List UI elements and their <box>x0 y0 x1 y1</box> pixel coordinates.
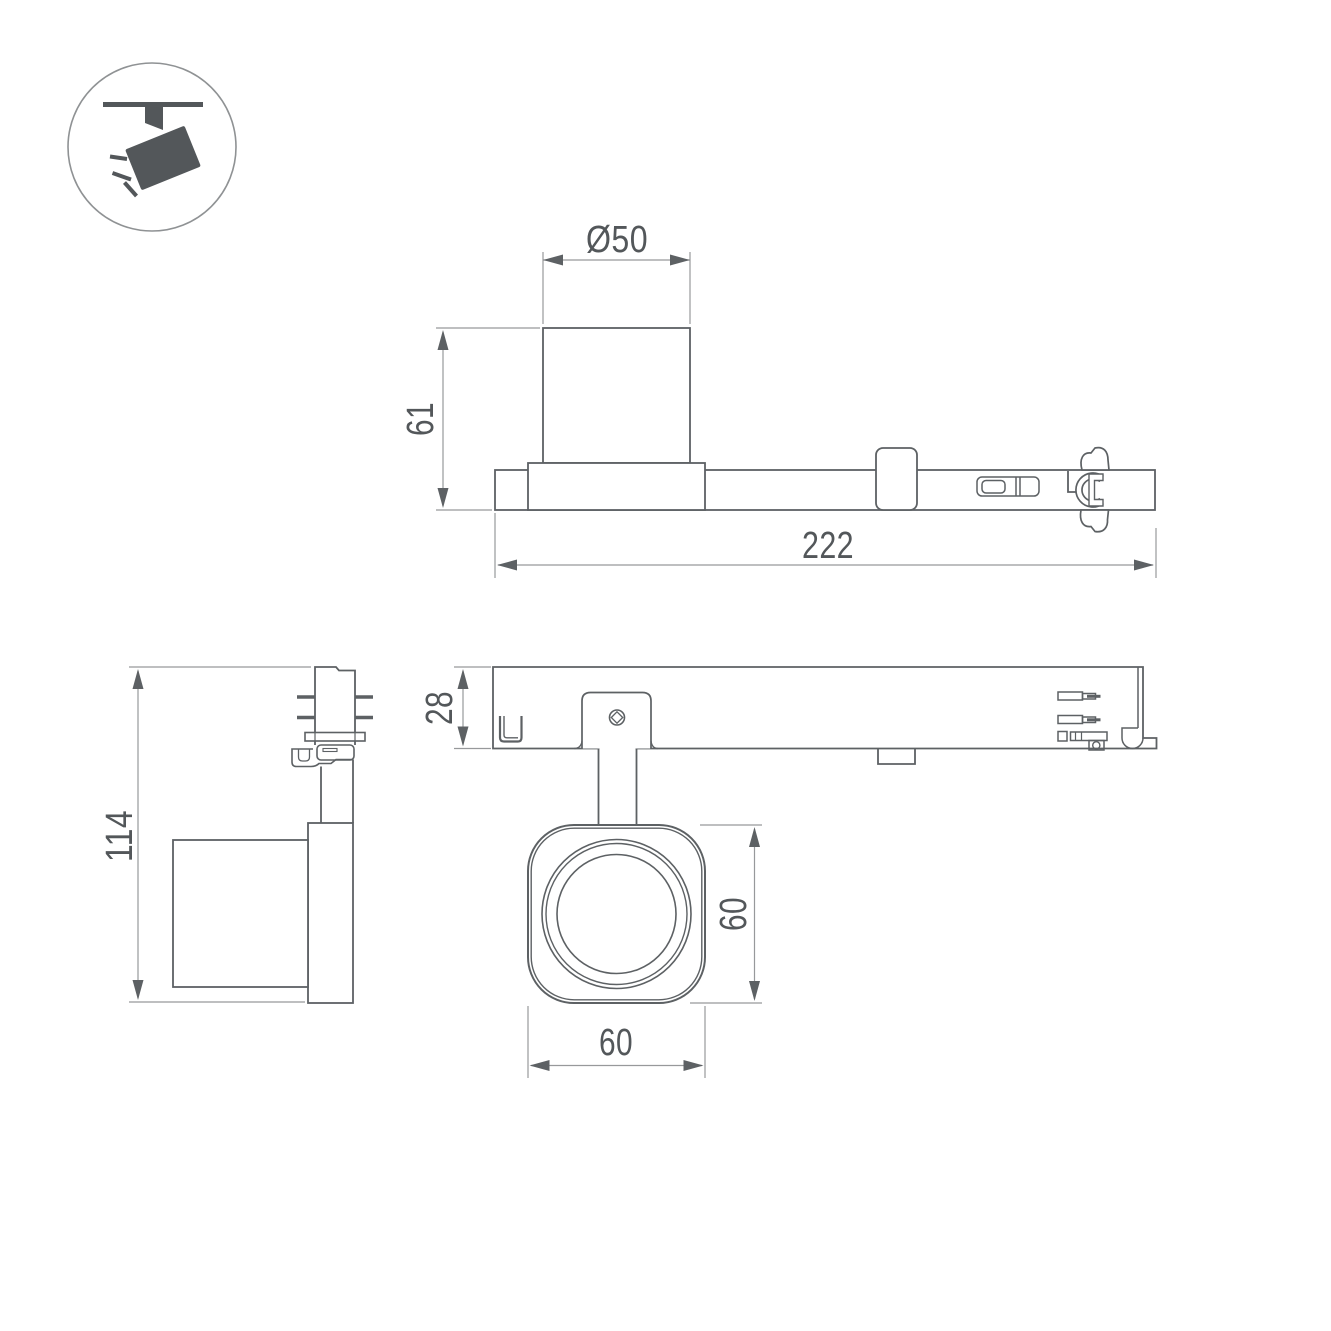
front-view <box>173 667 373 1003</box>
dim-label-cylinder-height: 61 <box>400 402 442 436</box>
front-adapter-flange <box>305 733 365 742</box>
technical-drawing: Ø50 61 222 114 <box>0 0 1331 1331</box>
plan-mount-bracket <box>574 693 658 749</box>
plan-view <box>493 667 1157 1003</box>
dim-label-diameter: Ø50 <box>586 219 648 261</box>
dim-label-rail-depth: 28 <box>419 691 461 725</box>
side-cylinder <box>543 328 690 463</box>
front-hook-slot <box>299 749 310 761</box>
plan-component-notch <box>878 749 915 765</box>
dim-label-length: 222 <box>802 525 854 567</box>
front-lamp-body <box>308 823 353 1003</box>
dim-label-head-width: 60 <box>599 1022 633 1064</box>
side-rail-component <box>876 448 917 510</box>
side-view-dimensions: Ø50 61 222 <box>400 219 1156 578</box>
side-adapter-base <box>528 463 705 510</box>
front-bracket <box>317 745 354 760</box>
track-spotlight-icon <box>68 63 236 231</box>
side-view <box>495 328 1155 532</box>
dim-label-head-height: 60 <box>713 897 755 931</box>
front-lamp-head <box>173 840 308 987</box>
dim-label-overall-height: 114 <box>99 810 141 862</box>
drawing-canvas: Ø50 61 222 114 <box>0 0 1331 1331</box>
side-switch <box>977 477 1039 496</box>
icon-track-bar <box>103 102 203 107</box>
plan-lamp-head <box>528 825 705 1003</box>
